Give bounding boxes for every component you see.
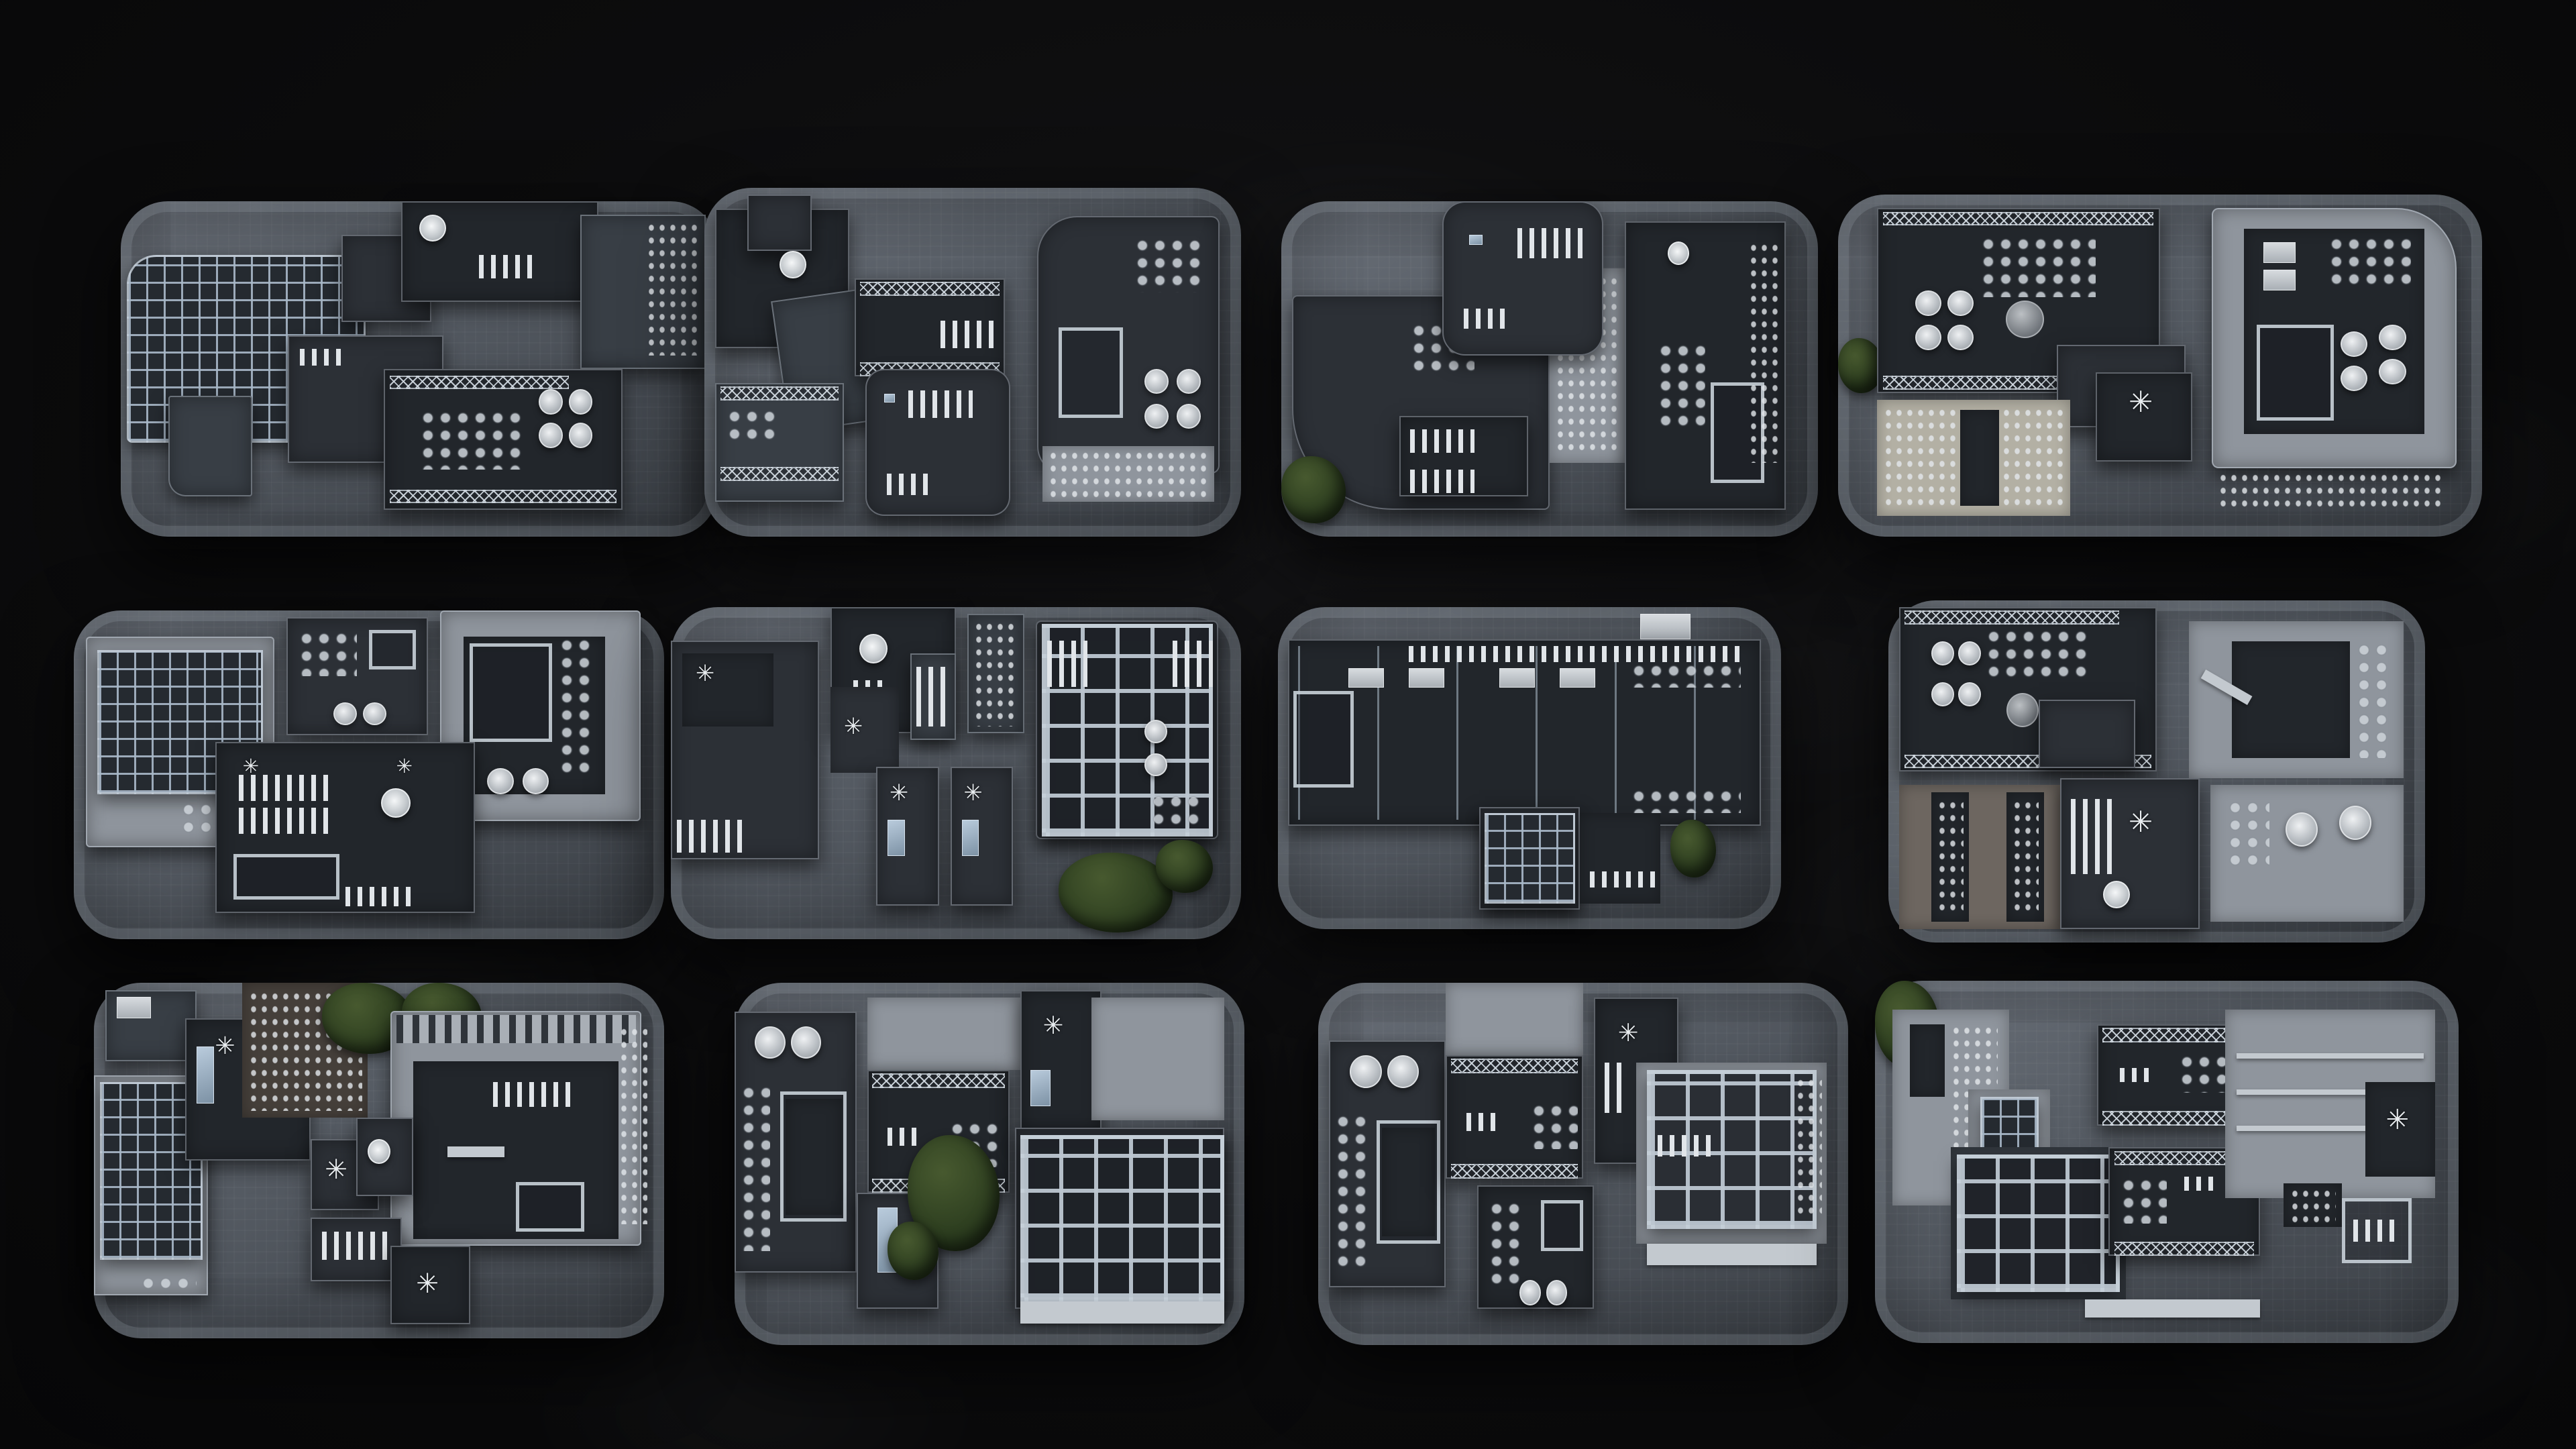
- roof-duct-frame: [470, 643, 552, 742]
- roof-vents-row: [1173, 641, 1213, 687]
- city-block-3: [1281, 201, 1818, 537]
- water-tank: [539, 423, 563, 448]
- ac-unit: [2263, 270, 2296, 290]
- satellite-dish: [2103, 881, 2130, 908]
- hvac-vent-grid: [1980, 235, 2096, 297]
- city-block-12: ✳: [1875, 981, 2459, 1343]
- hvac-vent-grid: [726, 408, 780, 443]
- hvac-vent-grid: [2355, 641, 2393, 757]
- building-roof: [1382, 1128, 1435, 1236]
- window-lights: [619, 1026, 647, 1225]
- roof-vents-row: [345, 887, 417, 906]
- building-roof: [1446, 983, 1583, 1055]
- roof-lattice-walkway: [1451, 1164, 1578, 1179]
- skylight-grid: [1980, 1097, 2039, 1155]
- roof-duct-frame: [369, 630, 416, 669]
- roof-lattice-walkway: [390, 490, 616, 503]
- building-roof: [1442, 201, 1603, 356]
- water-tank: [539, 389, 563, 415]
- parapet-fins: [396, 1015, 636, 1043]
- water-tank: [1144, 404, 1169, 428]
- roof-lattice-walkway: [720, 467, 839, 481]
- roof-duct-frame: [2257, 325, 2334, 421]
- building-roof: [830, 687, 899, 773]
- building-roof: [786, 1099, 842, 1215]
- satellite-dish: [859, 634, 888, 664]
- water-tank: [1519, 1280, 1541, 1305]
- storage-dome: [2006, 693, 2039, 727]
- roof-lattice-walkway: [720, 386, 839, 400]
- building-roof: [168, 396, 252, 496]
- window-lights: [1795, 1077, 1822, 1214]
- hvac-vent-grid: [1488, 1200, 1525, 1287]
- ac-unit: [2263, 242, 2296, 263]
- roof-vents-row: [916, 667, 951, 727]
- roof-vents-row: [1466, 1113, 1498, 1131]
- water-tank: [1144, 369, 1169, 393]
- roof-walkway: [1020, 1301, 1224, 1323]
- water-tank: [1915, 325, 1941, 350]
- water-tank: [755, 1026, 786, 1059]
- wind-turbine: ✳: [413, 1267, 442, 1299]
- glass-panel: [197, 1046, 214, 1104]
- roof-vents-row: [941, 321, 994, 349]
- wind-turbine: ✳: [694, 660, 716, 687]
- render-canvas: ✳✳✳✳✳✳✳✳✳✳✳✳✳✳: [0, 0, 2576, 1449]
- hvac-vent-grid: [2328, 235, 2412, 290]
- water-tank: [569, 423, 593, 448]
- roof-duct-frame: [233, 854, 339, 900]
- rooftop-tree: [1670, 820, 1716, 877]
- hvac-vent-grid: [740, 1084, 771, 1250]
- water-tank: [2379, 325, 2406, 350]
- water-tank: [1947, 290, 1973, 316]
- roof-walkway: [447, 1146, 504, 1157]
- roof-walkway: [2085, 1299, 2260, 1318]
- window-lights: [2218, 472, 2443, 513]
- city-block-5: ✳✳: [74, 610, 664, 939]
- hvac-vent-grid: [1630, 788, 1741, 813]
- wind-turbine: ✳: [392, 755, 416, 778]
- hvac-vent-grid: [419, 409, 527, 470]
- hvac-vent-grid: [1134, 237, 1203, 292]
- hvac-vent-grid: [1334, 1113, 1366, 1273]
- hvac-vent-grid: [1985, 628, 2092, 683]
- water-tank: [1931, 682, 1954, 706]
- roof-duct-frame: [1293, 691, 1354, 788]
- roof-duct-frame: [1541, 1200, 1583, 1251]
- water-tank: [1915, 290, 1941, 316]
- window-lights: [646, 221, 700, 356]
- water-tank: [487, 768, 514, 794]
- hvac-vent-grid: [1530, 1102, 1578, 1149]
- water-tank: [1350, 1055, 1381, 1088]
- window-lights: [2290, 1187, 2337, 1224]
- roof-vents-row: [2071, 799, 2114, 874]
- roof-vents-row: [1409, 646, 1741, 662]
- ac-unit: [1640, 614, 1690, 639]
- roof-duct-frame: [1059, 327, 1123, 418]
- roof-vents-row: [479, 255, 533, 278]
- hvac-vent-grid: [2226, 799, 2269, 867]
- wind-turbine: ✳: [842, 713, 865, 740]
- rooftop-tree: [1156, 840, 1213, 893]
- roof-vents-row: [2353, 1220, 2400, 1241]
- hvac-vent-grid: [558, 637, 594, 775]
- glass-panel: [1030, 1070, 1051, 1106]
- water-tank: [1144, 753, 1167, 777]
- wind-turbine: ✳: [322, 1153, 351, 1185]
- water-tank: [1177, 369, 1201, 393]
- roof-lattice-walkway: [872, 1073, 1005, 1088]
- roof-lattice-walkway: [1883, 376, 2076, 389]
- roof-lattice-walkway: [2114, 1242, 2255, 1256]
- building-roof: [1091, 998, 1224, 1121]
- wind-turbine: ✳: [2121, 386, 2160, 421]
- satellite-dish: [1668, 241, 1689, 265]
- window-lights: [1748, 241, 1780, 463]
- building-roof: [1580, 813, 1660, 903]
- glass-panel: [962, 820, 979, 856]
- roof-vents-row: [2184, 1177, 2219, 1191]
- building-roof: [2039, 700, 2135, 768]
- roof-vents-row: [887, 474, 930, 494]
- wind-turbine: ✳: [1040, 1012, 1066, 1040]
- glass-panel: [888, 820, 905, 856]
- glass-panel: [1469, 235, 1483, 245]
- hvac-vent-grid: [1657, 342, 1705, 429]
- roof-vents-row: [677, 820, 745, 853]
- roof-vents-row: [908, 390, 973, 419]
- wind-turbine: ✳: [962, 780, 985, 806]
- ac-unit: [117, 997, 151, 1018]
- window-lights: [2012, 799, 2039, 915]
- roof-vents-row: [239, 808, 333, 834]
- hvac-vent-grid: [298, 630, 357, 676]
- city-block-6: ✳✳✳✳: [671, 607, 1241, 939]
- city-block-11: ✳: [1318, 983, 1848, 1345]
- wind-turbine: ✳: [214, 1032, 237, 1061]
- city-block-1: [121, 201, 718, 537]
- satellite-dish: [381, 788, 411, 818]
- roof-lattice-walkway: [1883, 212, 2153, 225]
- roof-lattice-walkway: [390, 376, 569, 389]
- city-block-4: ✳: [1838, 195, 2482, 537]
- water-tank: [569, 389, 593, 415]
- roof-vents-row: [1590, 871, 1656, 888]
- roof-lattice-walkway: [1451, 1059, 1578, 1073]
- ac-unit: [1348, 668, 1384, 688]
- wind-turbine: ✳: [1615, 1019, 1642, 1048]
- window-lights: [1937, 799, 1964, 915]
- city-block-7: [1278, 607, 1781, 929]
- roof-vents-row: [1464, 309, 1512, 329]
- water-tank: [2341, 331, 2367, 357]
- city-block-9: ✳✳✳: [94, 983, 664, 1338]
- satellite-dish: [419, 215, 446, 241]
- wind-turbine: ✳: [888, 780, 910, 806]
- roof-vents-row: [888, 1128, 918, 1146]
- roof-walkway: [1647, 1244, 1817, 1265]
- water-tank: [1958, 641, 1981, 665]
- ac-unit: [1499, 668, 1535, 688]
- hvac-vent-grid: [2120, 1177, 2167, 1224]
- hvac-vent-grid: [140, 1275, 197, 1296]
- window-lights: [1048, 449, 1209, 498]
- atrium-grid: [1020, 1135, 1224, 1301]
- atrium-grid: [1957, 1155, 2121, 1292]
- roof-vents-row: [1517, 228, 1587, 258]
- water-tank: [2341, 366, 2367, 391]
- water-tank: [2339, 806, 2371, 840]
- satellite-dish: [780, 251, 806, 279]
- roof-vents-row: [322, 1232, 390, 1260]
- water-tank: [1177, 404, 1201, 428]
- roof-vents-row: [300, 349, 347, 366]
- building-roof: [1910, 1024, 1945, 1097]
- water-tank: [2379, 359, 2406, 384]
- water-tank: [2286, 812, 2318, 847]
- roof-vents-row: [2120, 1068, 2149, 1083]
- roof-vents-row: [493, 1082, 573, 1107]
- city-block-2: [704, 188, 1241, 537]
- wind-turbine: ✳: [2125, 806, 2157, 840]
- roof-vents-row: [1410, 429, 1474, 453]
- water-tank: [1546, 1280, 1568, 1305]
- glass-panel: [884, 394, 895, 402]
- water-tank: [1958, 682, 1981, 706]
- ac-unit: [1560, 668, 1595, 688]
- roof-walkway: [2237, 1053, 2423, 1059]
- water-tank: [1144, 720, 1167, 743]
- roof-vents-row: [1605, 1063, 1626, 1114]
- hvac-vent-grid: [1630, 662, 1741, 688]
- skylight-grid: [1485, 813, 1575, 903]
- ac-unit: [1409, 668, 1444, 688]
- water-tank: [1931, 641, 1954, 665]
- building-roof: [867, 998, 1020, 1070]
- rooftop-tree: [888, 1222, 938, 1279]
- wind-turbine: ✳: [2383, 1104, 2412, 1137]
- roof-vents-row: [239, 775, 333, 801]
- roof-vents-row: [1410, 470, 1474, 493]
- city-block-8: ✳: [1888, 600, 2425, 943]
- roof-vents-row: [1658, 1135, 1711, 1157]
- roof-duct-frame: [516, 1182, 584, 1232]
- building-roof: [747, 195, 812, 250]
- city-block-10: ✳: [735, 983, 1244, 1345]
- satellite-dish: [368, 1139, 390, 1164]
- water-tank: [1387, 1055, 1419, 1088]
- hvac-vent-grid: [1150, 793, 1201, 826]
- water-tank: [1947, 325, 1973, 350]
- roof-lattice-walkway: [1904, 610, 2119, 624]
- window-lights: [973, 621, 1019, 727]
- storage-dome: [2006, 301, 2045, 338]
- roof-vents-row: [1047, 641, 1087, 687]
- roof-lattice-walkway: [860, 282, 1000, 296]
- building-roof: [1960, 410, 1999, 506]
